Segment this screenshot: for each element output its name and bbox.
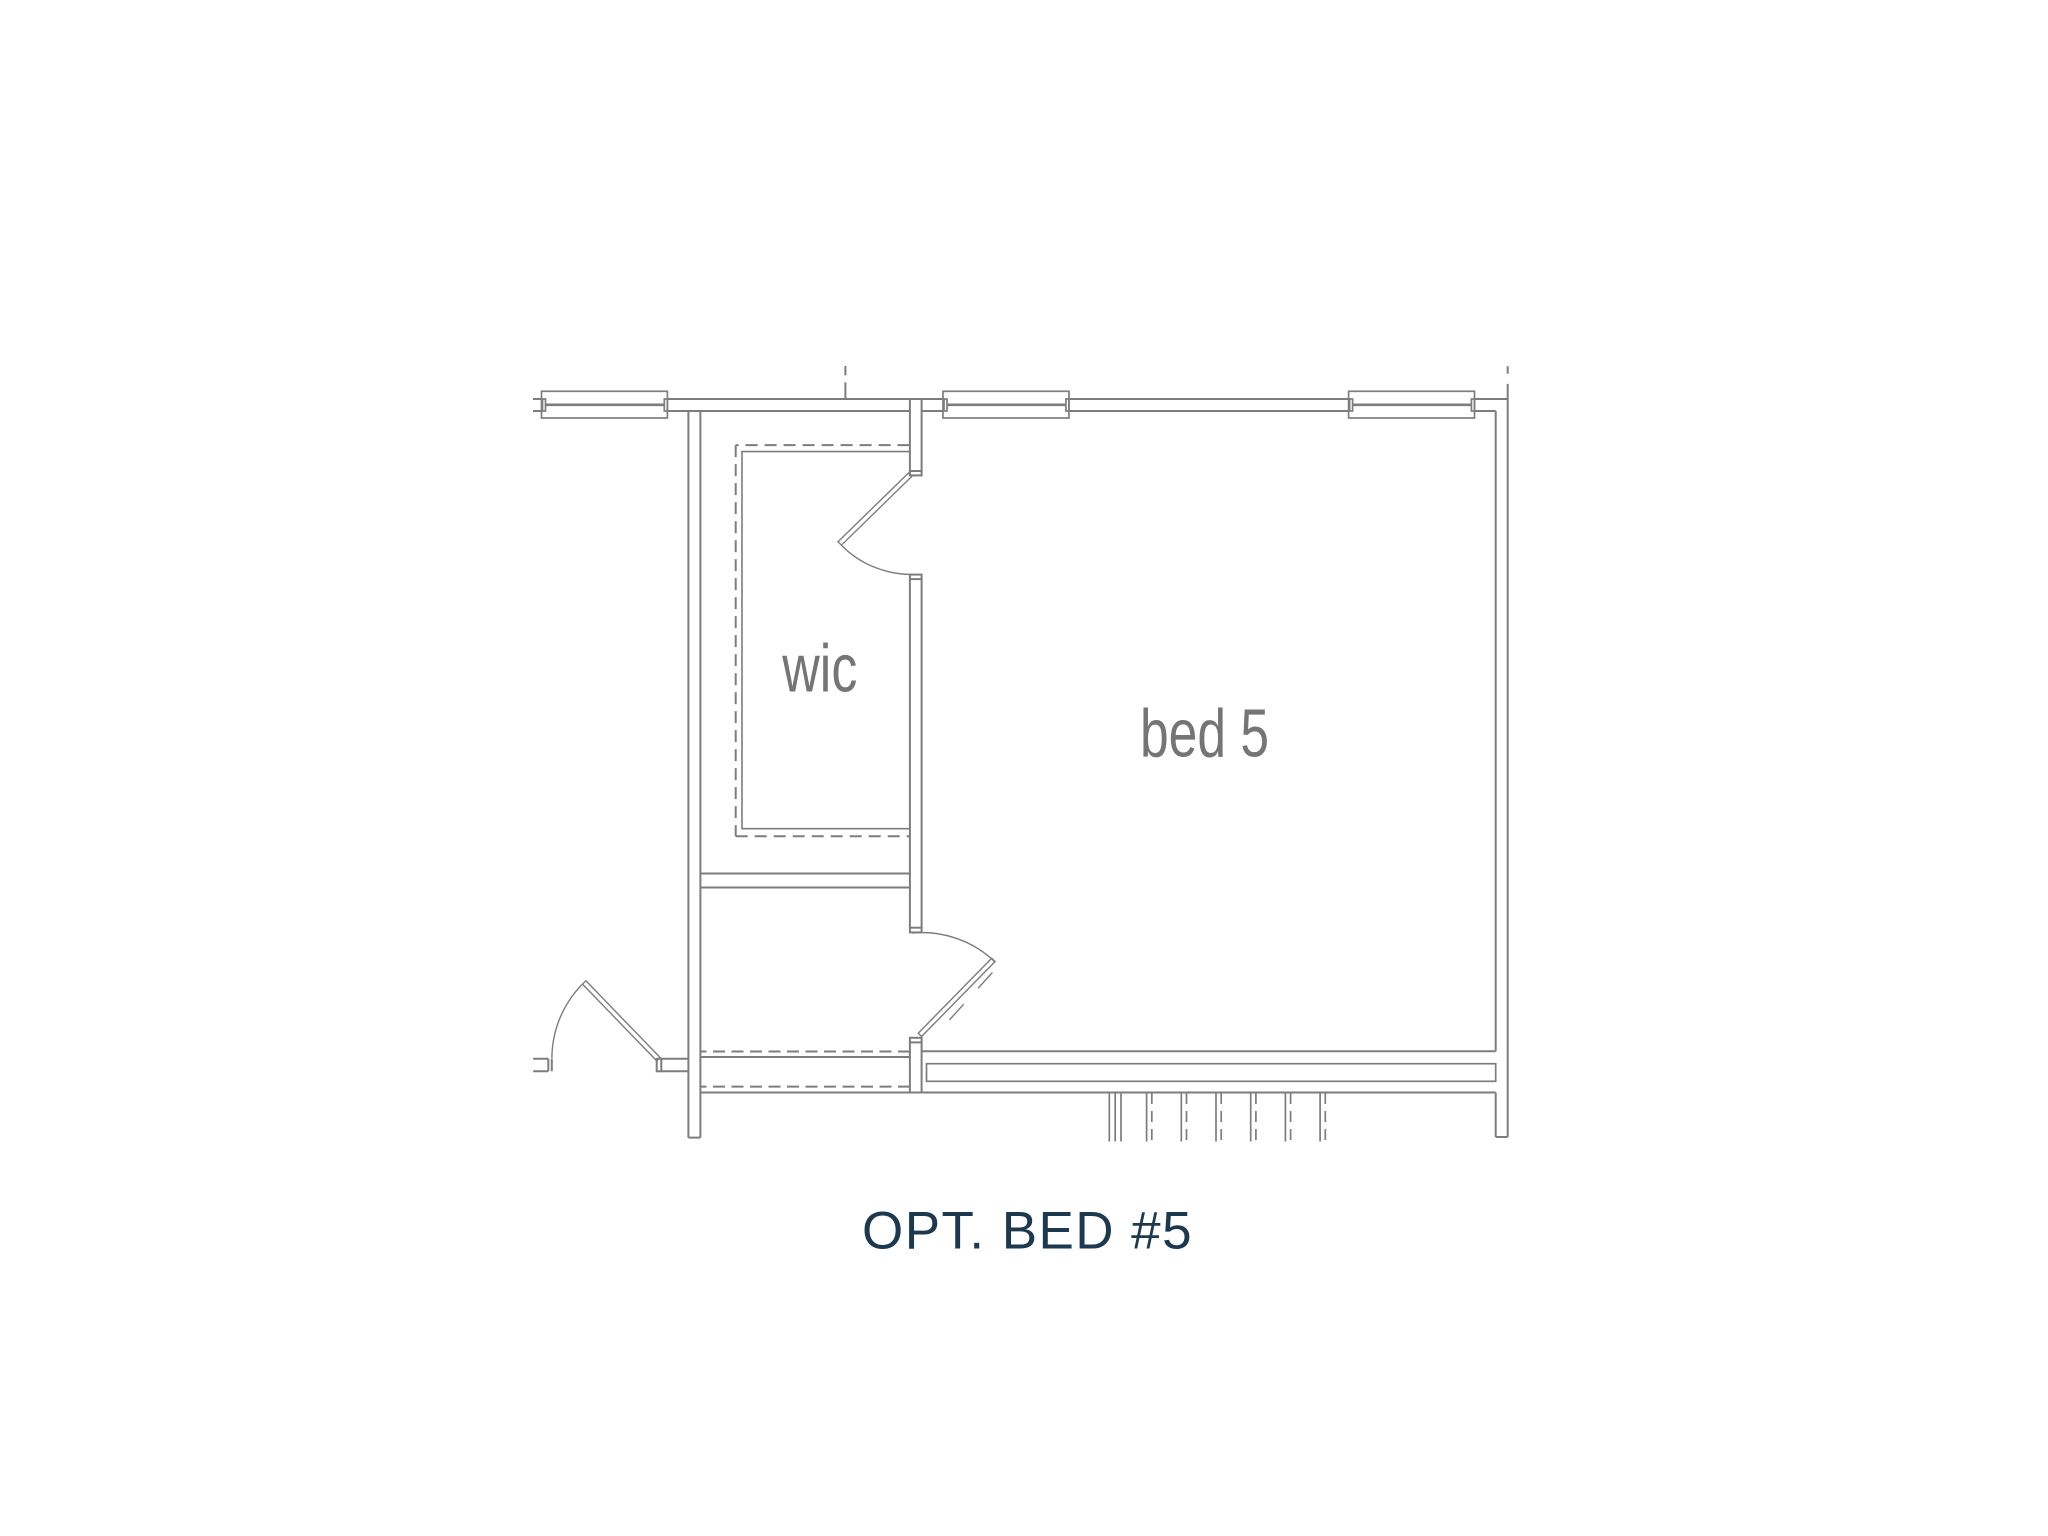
svg-text:OPT. BED #5: OPT. BED #5 bbox=[862, 1201, 1192, 1260]
svg-text:wic: wic bbox=[782, 630, 858, 706]
svg-text:bed 5: bed 5 bbox=[1140, 695, 1269, 771]
